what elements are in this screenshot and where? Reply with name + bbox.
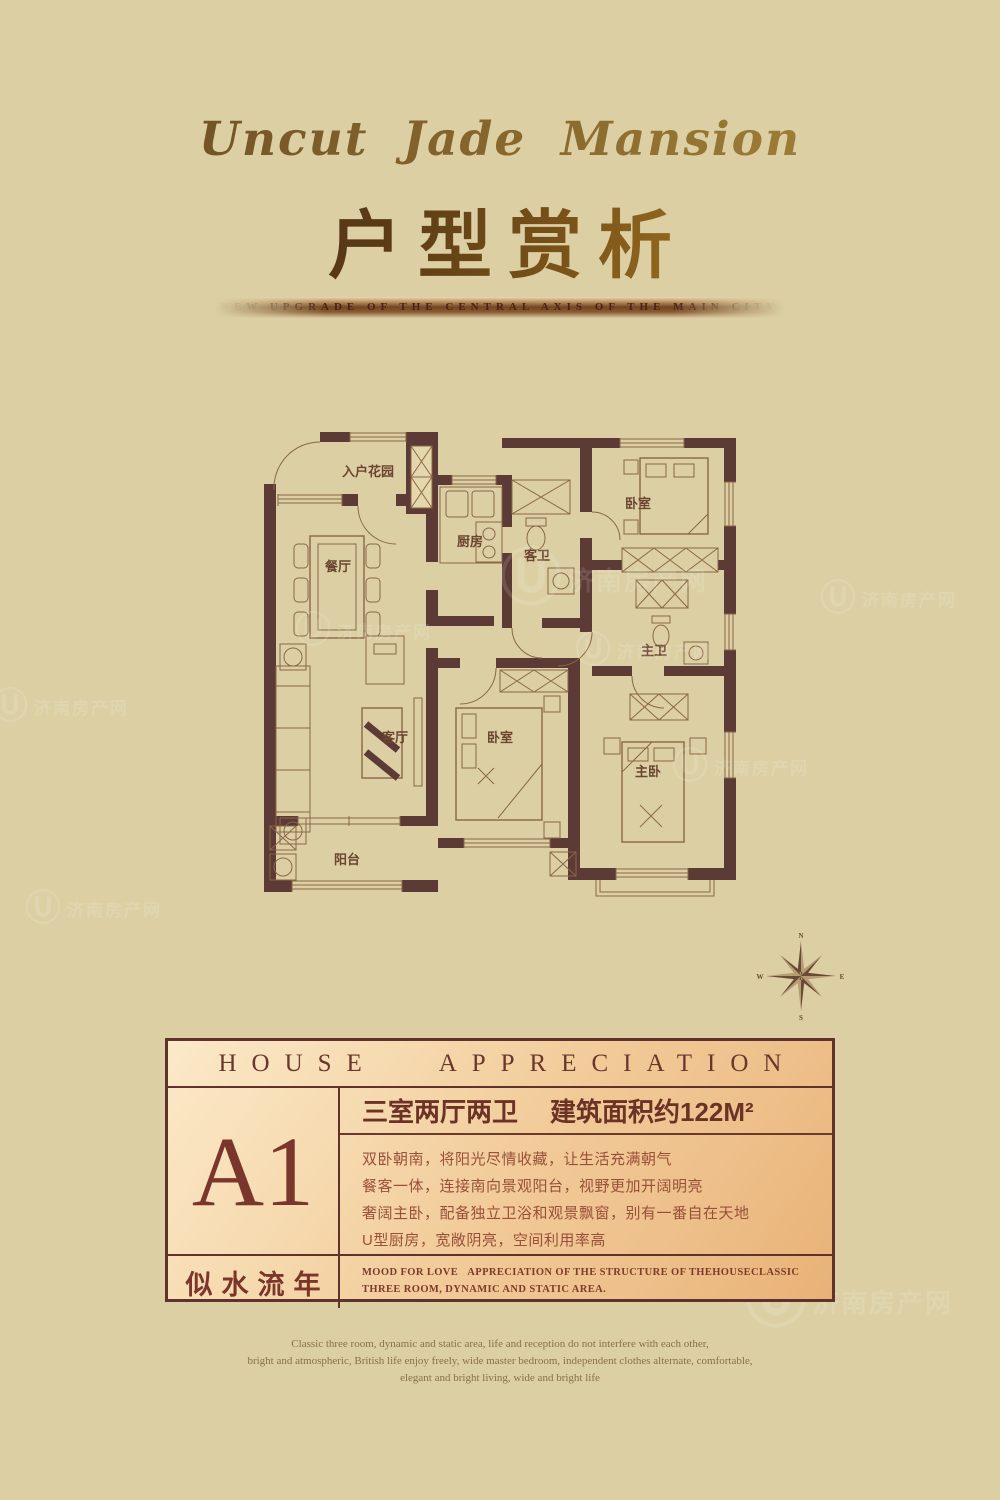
shaft: [411, 446, 432, 508]
walls: [264, 432, 736, 892]
footer-note: Classic three room, dynamic and static a…: [0, 1336, 1000, 1387]
card-header: HOUSE APPRECIATION: [168, 1041, 832, 1088]
watermark-logo-icon: Ⓤ: [820, 580, 856, 616]
furniture: [270, 458, 718, 880]
room-label-bedroom-north: 卧室: [625, 496, 651, 511]
unit-description: 三室两厅两卫 建筑面积约122M² 双卧朝南，将阳光尽情收藏，让生活充满朝气 餐…: [340, 1088, 832, 1254]
room-label-master-bath: 主卫: [641, 643, 667, 658]
card-body: A1 三室两厅两卫 建筑面积约122M² 双卧朝南，将阳光尽情收藏，让生活充满朝…: [168, 1088, 832, 1308]
room-label-guest-bath: 客卫: [524, 548, 550, 563]
feature-item: 奢阔主卧，配备独立卫浴和观景飘窗，别有一番自在天地: [362, 1200, 814, 1227]
caption-english: MOOD FOR LOVE APPRECIATION OF THE STRUCT…: [340, 1254, 832, 1308]
feature-list: 双卧朝南，将阳光尽情收藏，让生活充满朝气 餐客一体，连接南向景观阳台，视野更加开…: [340, 1135, 832, 1254]
unit-layout: 三室两厅两卫: [362, 1092, 518, 1129]
unit-area: 建筑面积约122M²: [550, 1092, 754, 1129]
watermark-logo-icon: Ⓤ: [0, 688, 28, 724]
script-title: Uncut Jade Mansion: [0, 112, 1000, 167]
unit-spec-row: 三室两厅两卫 建筑面积约122M²: [340, 1088, 832, 1135]
room-label-master-bedroom: 主卧: [635, 764, 661, 779]
ribbon-text: NEW UPGRADE OF THE CENTRAL AXIS OF THE M…: [215, 297, 785, 318]
floor-plan: 入户花园 厨房 客卫 卧室 餐厅 主卫 客厅 卧室 主卧 阳台: [250, 420, 742, 940]
feature-item: 双卧朝南，将阳光尽情收藏，让生活充满朝气: [362, 1146, 814, 1173]
feature-item: U型厨房，宽敞阴亮，空间利用率高: [362, 1227, 814, 1254]
compass-star: [766, 941, 836, 1011]
watermark: Ⓤ济南房产网: [0, 688, 129, 724]
poster-page: Uncut Jade Mansion 户型赏析 NEW UPGRADE OF T…: [0, 0, 1000, 1500]
compass-e: E: [840, 973, 845, 981]
unit-slogan: 似水流年: [168, 1254, 340, 1308]
compass-icon: N E S W: [756, 931, 846, 1021]
unit-code: A1: [168, 1088, 340, 1254]
ribbon-banner: NEW UPGRADE OF THE CENTRAL AXIS OF THE M…: [215, 297, 785, 318]
watermark: Ⓤ济南房产网: [25, 890, 162, 926]
room-label-bedroom-middle: 卧室: [487, 730, 513, 745]
unit-info-card: HOUSE APPRECIATION A1 三室两厅两卫 建筑面积约122M² …: [165, 1038, 835, 1302]
room-label-balcony: 阳台: [334, 852, 360, 867]
room-label-dining: 餐厅: [324, 559, 351, 574]
watermark: Ⓤ济南房产网: [820, 580, 957, 616]
compass-w: W: [757, 973, 764, 981]
feature-item: 餐客一体，连接南向景观阳台，视野更加开阔明亮: [362, 1173, 814, 1200]
room-label-entry-garden: 入户花园: [342, 464, 394, 479]
compass-n: N: [798, 932, 803, 940]
room-label-living: 客厅: [382, 730, 408, 745]
page-title: 户型赏析: [0, 186, 1000, 293]
room-label-kitchen: 厨房: [457, 534, 483, 549]
watermark-logo-icon: Ⓤ: [25, 890, 61, 926]
compass-s: S: [799, 1014, 803, 1021]
